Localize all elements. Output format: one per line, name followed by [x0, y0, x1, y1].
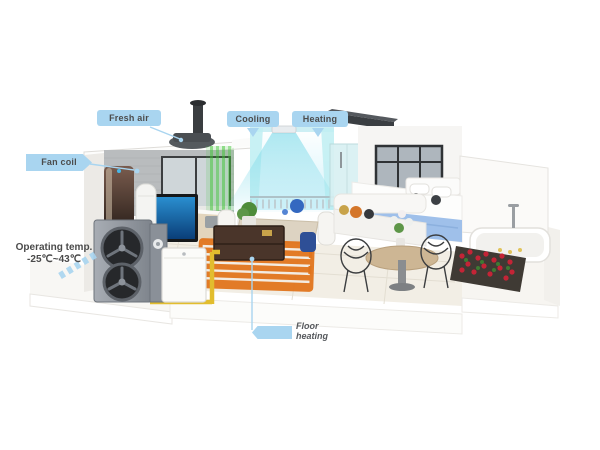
- sofa-pillow: [364, 209, 374, 219]
- heat-pump-house-illustration: Fresh air Cooling Heating Fan coil Opera…: [0, 0, 600, 450]
- callout-dot-icon: [179, 138, 183, 142]
- callout-dot-icon: [135, 169, 140, 174]
- fan-icon: [102, 228, 142, 268]
- label-operating-temp: Operating temp. -25℃~43℃: [8, 242, 100, 266]
- heat-pump-outdoor-unit: [94, 220, 167, 302]
- roof-vent-unit: [169, 100, 215, 149]
- accent-chair: [300, 232, 316, 252]
- floor-heating-arrow-icon: [252, 326, 292, 339]
- sofa-pillow: [350, 206, 362, 218]
- operating-temp-line2: -25℃~43℃: [27, 254, 81, 265]
- sofa-pillow: [339, 205, 349, 215]
- label-fan-coil: Fan coil: [26, 154, 92, 171]
- operating-temp-line1: Operating temp.: [16, 242, 93, 253]
- label-fresh-air: Fresh air: [97, 110, 161, 126]
- status-light-icon: [117, 169, 121, 173]
- faucet-icon: [512, 206, 515, 228]
- table-decor: [290, 199, 304, 213]
- label-cooling: Cooling: [227, 111, 279, 127]
- hydro-module-unit: [162, 248, 206, 302]
- floor-heating-line2: heating: [296, 331, 328, 341]
- fan-icon: [104, 264, 140, 300]
- floor-heating-line1: Floor: [296, 321, 319, 331]
- label-heating: Heating: [292, 111, 348, 127]
- house-cutaway-render: [0, 0, 600, 450]
- ceiling-cassette-unit: [272, 126, 296, 133]
- callout-dot-icon: [250, 257, 255, 262]
- label-floor-heating: Floor heating: [296, 321, 346, 341]
- far-right-wall: [460, 156, 548, 238]
- leader-line: [150, 127, 180, 139]
